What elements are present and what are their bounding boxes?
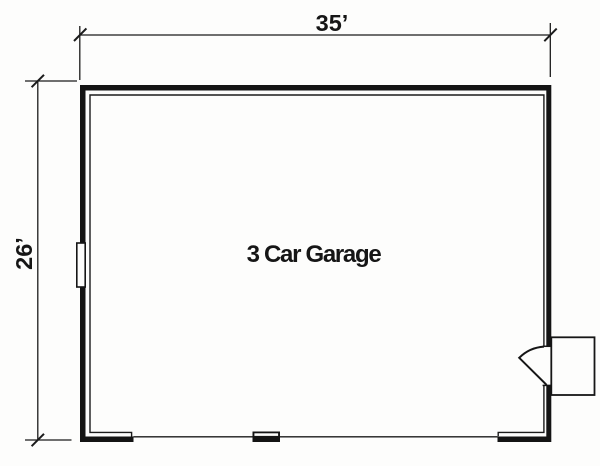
svg-text:35’: 35’ [316, 10, 349, 36]
svg-text:3 Car Garage: 3 Car Garage [247, 241, 382, 268]
svg-text:26’: 26’ [11, 237, 37, 270]
